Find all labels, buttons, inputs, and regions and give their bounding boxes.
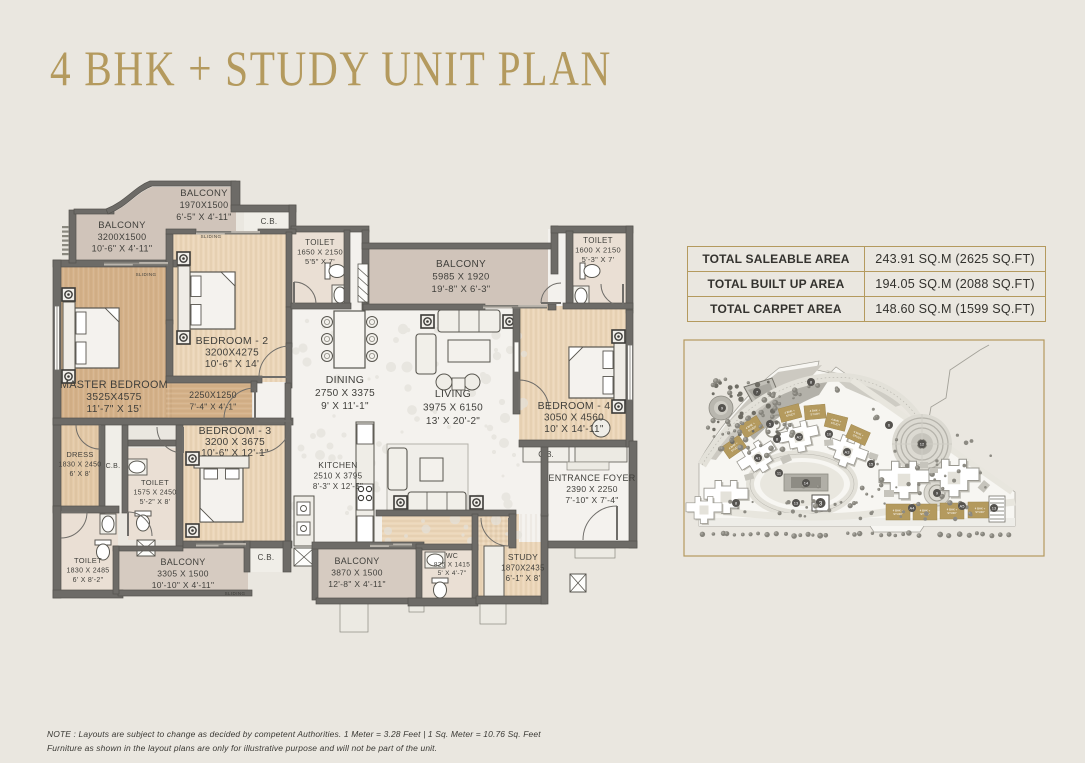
svg-text:KITCHEN: KITCHEN [318,460,357,470]
svg-text:2390 X 2250: 2390 X 2250 [566,484,618,494]
svg-text:5'5" X 7': 5'5" X 7' [305,257,335,266]
svg-text:DINING: DINING [326,374,365,386]
svg-text:2250X1250: 2250X1250 [189,390,237,400]
svg-text:1575 X 2450: 1575 X 2450 [133,490,176,497]
svg-text:SLIDING: SLIDING [136,272,157,277]
svg-text:13: 13 [992,506,997,511]
svg-text:10'-6" X 14': 10'-6" X 14' [205,359,259,370]
svg-text:TOILET: TOILET [141,478,169,487]
svg-text:A4: A4 [910,506,916,511]
svg-text:3870 X 1500: 3870 X 1500 [331,568,383,578]
svg-text:10' X 14'-11": 10' X 14'-11" [544,424,604,435]
svg-text:2510 X 3795: 2510 X 3795 [314,472,363,481]
svg-text:6'-5" X 4'-11": 6'-5" X 4'-11" [176,212,231,222]
svg-text:BEDROOM - 2: BEDROOM - 2 [196,335,269,347]
svg-text:BALCONY: BALCONY [180,188,228,199]
svg-text:6' X 8'-2": 6' X 8'-2" [73,577,104,584]
svg-text:1650 X 2150: 1650 X 2150 [297,248,343,257]
svg-text:3525X4575: 3525X4575 [86,392,141,403]
svg-text:A1: A1 [756,456,762,461]
svg-text:A5: A5 [960,504,966,509]
svg-text:BALCONY: BALCONY [436,259,486,270]
svg-text:7'-10" X 7'-4": 7'-10" X 7'-4" [565,495,618,505]
svg-text:5'-3" X 7': 5'-3" X 7' [582,255,615,264]
svg-text:13: 13 [794,501,799,506]
svg-text:5'-2" X 8': 5'-2" X 8' [140,499,171,506]
svg-text:STUDY: STUDY [810,412,820,417]
svg-text:BALCONY: BALCONY [98,220,146,231]
svg-text:1830 X 2450: 1830 X 2450 [58,462,101,469]
svg-text:3050 X 4560: 3050 X 4560 [544,413,604,424]
svg-text:WC: WC [446,553,458,560]
svg-text:C.B.: C.B. [106,463,121,470]
svg-text:DRESS: DRESS [66,450,93,459]
svg-text:STUDY: STUDY [947,511,957,515]
svg-text:8'-3" X 12'-5": 8'-3" X 12'-5" [313,482,363,491]
svg-text:SLIDING: SLIDING [201,234,222,239]
svg-text:A3: A3 [845,450,851,455]
svg-text:LIVING: LIVING [435,388,471,400]
svg-text:3305 X 1500: 3305 X 1500 [157,569,209,579]
svg-text:BEDROOM - 3: BEDROOM - 3 [199,425,272,437]
svg-text:5' X 4'-7": 5' X 4'-7" [438,570,467,577]
svg-text:1970X1500: 1970X1500 [180,200,229,210]
svg-text:14: 14 [804,481,809,486]
svg-text:STUDY: STUDY [975,510,985,514]
svg-text:15: 15 [869,462,874,467]
svg-text:2750 X 3375: 2750 X 3375 [315,388,375,399]
svg-text:3200X1500: 3200X1500 [98,232,147,242]
svg-text:A2: A2 [797,435,803,440]
svg-text:7'-4" X 4'-1": 7'-4" X 4'-1" [189,402,236,412]
svg-text:TOILET: TOILET [583,236,613,245]
svg-text:11'-7" X 15': 11'-7" X 15' [86,404,141,415]
svg-text:3975 X 6150: 3975 X 6150 [423,403,483,414]
svg-text:6'-1" X 8': 6'-1" X 8' [506,574,541,583]
svg-text:MASTER BEDROOM: MASTER BEDROOM [60,379,168,391]
svg-text:12: 12 [920,442,925,447]
svg-text:6' X 8': 6' X 8' [69,471,90,478]
svg-text:13' X 20'-2": 13' X 20'-2" [426,416,480,427]
svg-text:10'-6" X 4'-11": 10'-6" X 4'-11" [92,244,153,254]
svg-text:3200 X 3675: 3200 X 3675 [205,437,265,448]
svg-text:10'-6" X 12'-1": 10'-6" X 12'-1" [201,448,269,459]
svg-text:TOILET: TOILET [74,556,102,565]
svg-text:1830 X 2485: 1830 X 2485 [66,568,109,575]
svg-text:BALCONY: BALCONY [160,557,205,567]
svg-text:1600 X 2150: 1600 X 2150 [575,246,621,255]
svg-text:19'-8" X 6'-3": 19'-8" X 6'-3" [432,284,491,295]
svg-text:STUDY: STUDY [508,552,538,562]
svg-text:C.B.: C.B. [261,217,278,226]
svg-text:10'-10" X 4'-11": 10'-10" X 4'-11" [152,580,215,590]
svg-text:10: 10 [827,432,832,437]
svg-text:STUDY: STUDY [893,512,903,516]
svg-text:TOILET: TOILET [305,238,335,247]
svg-text:C.B.: C.B. [258,553,275,562]
svg-text:BALCONY: BALCONY [334,556,379,566]
svg-text:1870X2435: 1870X2435 [501,564,545,573]
svg-text:3: 3 [819,501,823,508]
svg-text:ENTRANCE FOYER: ENTRANCE FOYER [548,473,635,483]
svg-text:3200X4275: 3200X4275 [205,348,259,359]
svg-text:SLIDING: SLIDING [225,591,246,596]
svg-text:825 X 1415: 825 X 1415 [434,562,470,569]
svg-text:5985 X 1920: 5985 X 1920 [432,272,489,283]
svg-text:BEDROOM - 4: BEDROOM - 4 [538,400,611,412]
svg-text:9' X 11'-1": 9' X 11'-1" [321,401,369,412]
svg-text:12'-8" X 4'-11": 12'-8" X 4'-11" [328,579,386,589]
